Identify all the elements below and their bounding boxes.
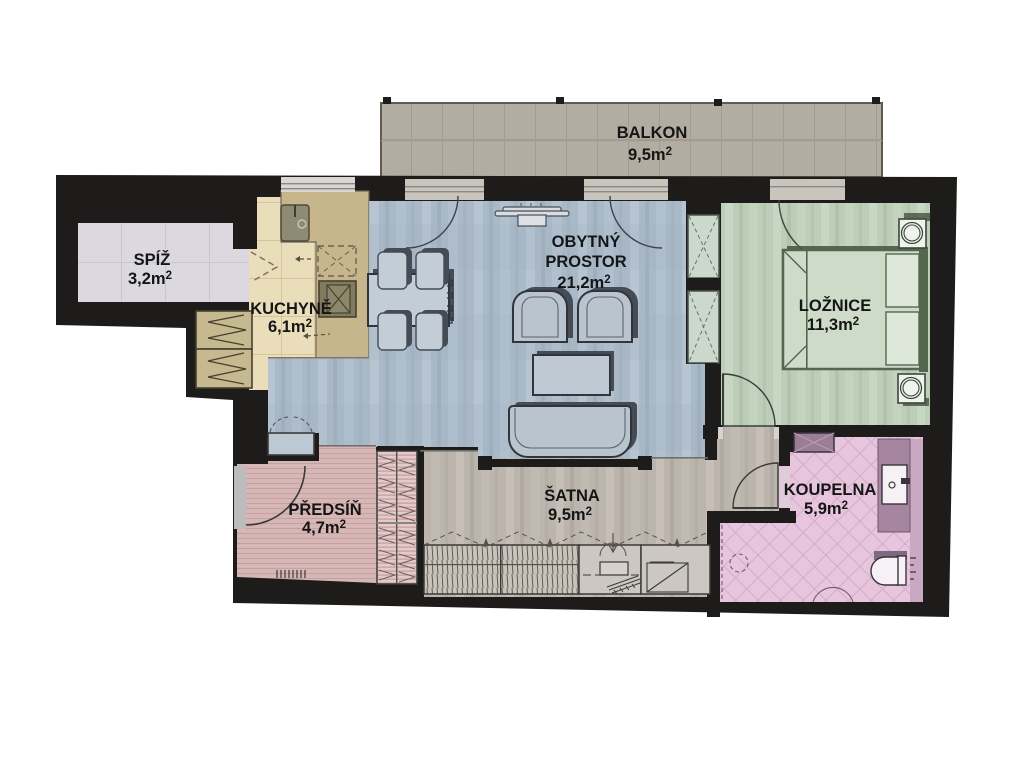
svg-text:11,3m2: 11,3m2 — [807, 316, 859, 334]
svg-text:9,5m2: 9,5m2 — [548, 506, 592, 524]
svg-text:OBYTNÝ: OBYTNÝ — [552, 232, 621, 251]
svg-text:9,5m2: 9,5m2 — [628, 146, 672, 164]
svg-text:PROSTOR: PROSTOR — [545, 253, 626, 271]
svg-text:4,7m2: 4,7m2 — [302, 519, 346, 537]
svg-text:KOUPELNA: KOUPELNA — [784, 481, 877, 499]
svg-text:21,2m2: 21,2m2 — [557, 274, 610, 292]
svg-text:LOŽNICE: LOŽNICE — [799, 296, 871, 315]
svg-text:6,1m2: 6,1m2 — [268, 318, 312, 336]
svg-text:ŠATNA: ŠATNA — [544, 486, 600, 505]
svg-text:3,2m2: 3,2m2 — [128, 270, 172, 288]
svg-text:5,9m2: 5,9m2 — [804, 500, 848, 518]
svg-text:KUCHYNĚ: KUCHYNĚ — [250, 299, 332, 318]
svg-text:PŘEDSÍŇ: PŘEDSÍŇ — [288, 500, 361, 519]
svg-text:SPÍŽ: SPÍŽ — [134, 250, 171, 269]
svg-text:BALKON: BALKON — [617, 124, 688, 142]
